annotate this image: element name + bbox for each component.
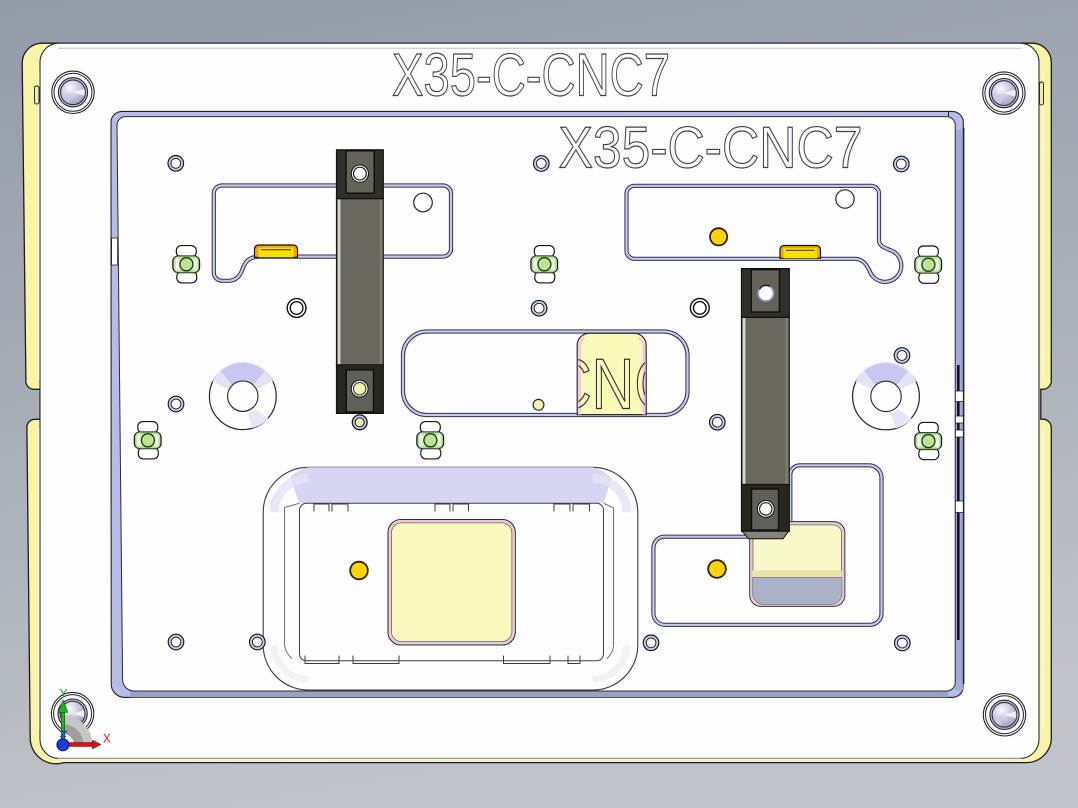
svg-text:X: X xyxy=(103,734,111,746)
svg-text:X35-C-CNC7: X35-C-CNC7 xyxy=(392,42,670,109)
svg-text:Y: Y xyxy=(60,688,68,700)
svg-text:X35-C-CNC7: X35-C-CNC7 xyxy=(559,116,863,181)
